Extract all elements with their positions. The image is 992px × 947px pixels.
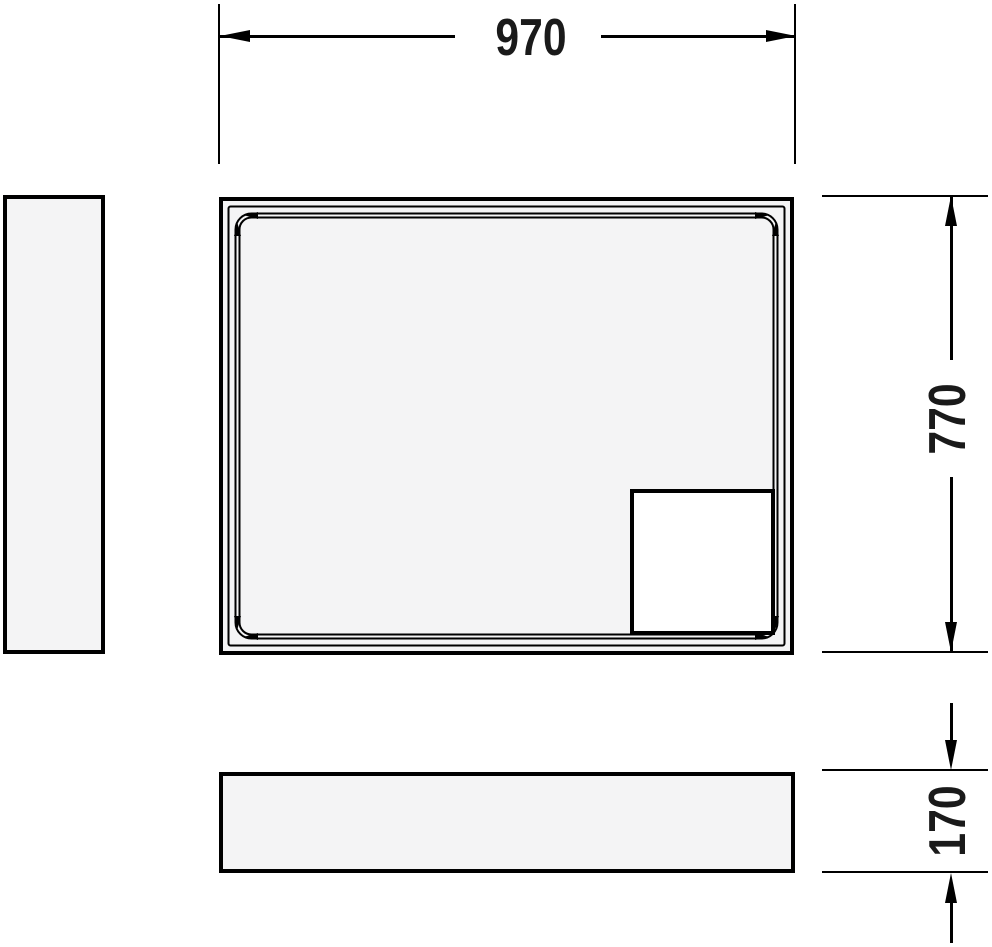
height-arrow-up-icon [945,873,957,903]
corner-square [632,491,773,633]
height-extension-line-bottom [822,871,988,873]
width-dimension-line-left-segment [220,35,455,38]
height-dimension-leader-lower [950,903,953,943]
width-extension-line-right [794,4,796,164]
width-arrow-left-icon [220,30,250,42]
side-panel-view [3,195,105,654]
depth-arrow-up-icon [945,196,957,226]
tray-top-view [219,197,794,655]
depth-extension-line-top [822,195,988,197]
width-arrow-right-icon [766,30,796,42]
height-dimension-label: 170 [922,785,974,856]
depth-dimension-label: 770 [922,383,974,454]
height-extension-line-top [822,769,988,771]
technical-drawing-canvas: 970 [0,0,992,947]
width-extension-line-left [218,4,220,164]
tray-top-view-detail [223,201,790,651]
rim-corner-hook-top-right [755,212,779,236]
rim-corner-hook-bottom-left [234,616,258,640]
width-dimension-label: 970 [495,12,566,64]
front-panel-view [219,772,795,873]
height-dimension-leader-upper [950,703,953,741]
rim-corner-hook-top-left [234,212,258,236]
depth-arrow-down-icon [945,622,957,652]
depth-extension-line-bottom [822,651,988,653]
height-arrow-down-icon [945,740,957,770]
